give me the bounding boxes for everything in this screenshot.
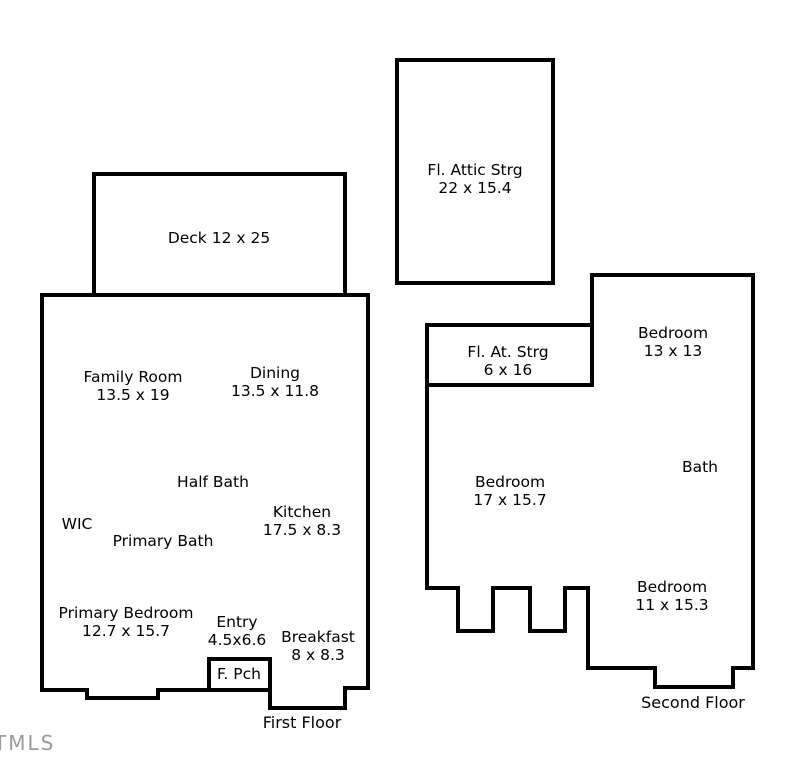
room-label-primary-bedroom: Primary Bedroom 12.7 x 15.7 [59, 604, 194, 640]
floorplan-page: Fl. Attic Strg 22 x 15.4 Deck 12 x 25 Fa… [0, 0, 800, 780]
room-label-primary-bath: Primary Bath [113, 532, 214, 550]
tmls-watermark: TMLS [0, 731, 55, 755]
room-label-front-porch: F. Pch [217, 665, 261, 683]
first-floor-caption: First Floor [263, 714, 342, 732]
room-label-bedroom-17: Bedroom 17 x 15.7 [473, 473, 546, 509]
room-label-entry: Entry 4.5x6.6 [208, 613, 266, 649]
room-label-bath: Bath [682, 458, 718, 476]
room-label-fl-at-strg: Fl. At. Strg 6 x 16 [467, 343, 548, 379]
room-label-bedroom-13: Bedroom 13 x 13 [638, 324, 708, 360]
room-label-dining: Dining 13.5 x 11.8 [231, 364, 319, 400]
second-floor-caption: Second Floor [641, 694, 745, 712]
room-label-wic: WIC [62, 515, 93, 533]
room-label-breakfast: Breakfast 8 x 8.3 [281, 628, 355, 664]
room-label-family-room: Family Room 13.5 x 19 [84, 368, 183, 404]
room-label-kitchen: Kitchen 17.5 x 8.3 [263, 503, 341, 539]
attic-label: Fl. Attic Strg 22 x 15.4 [427, 161, 522, 197]
room-label-bedroom-11: Bedroom 11 x 15.3 [635, 578, 708, 614]
deck-label: Deck 12 x 25 [168, 229, 270, 247]
room-label-half-bath: Half Bath [177, 473, 249, 491]
